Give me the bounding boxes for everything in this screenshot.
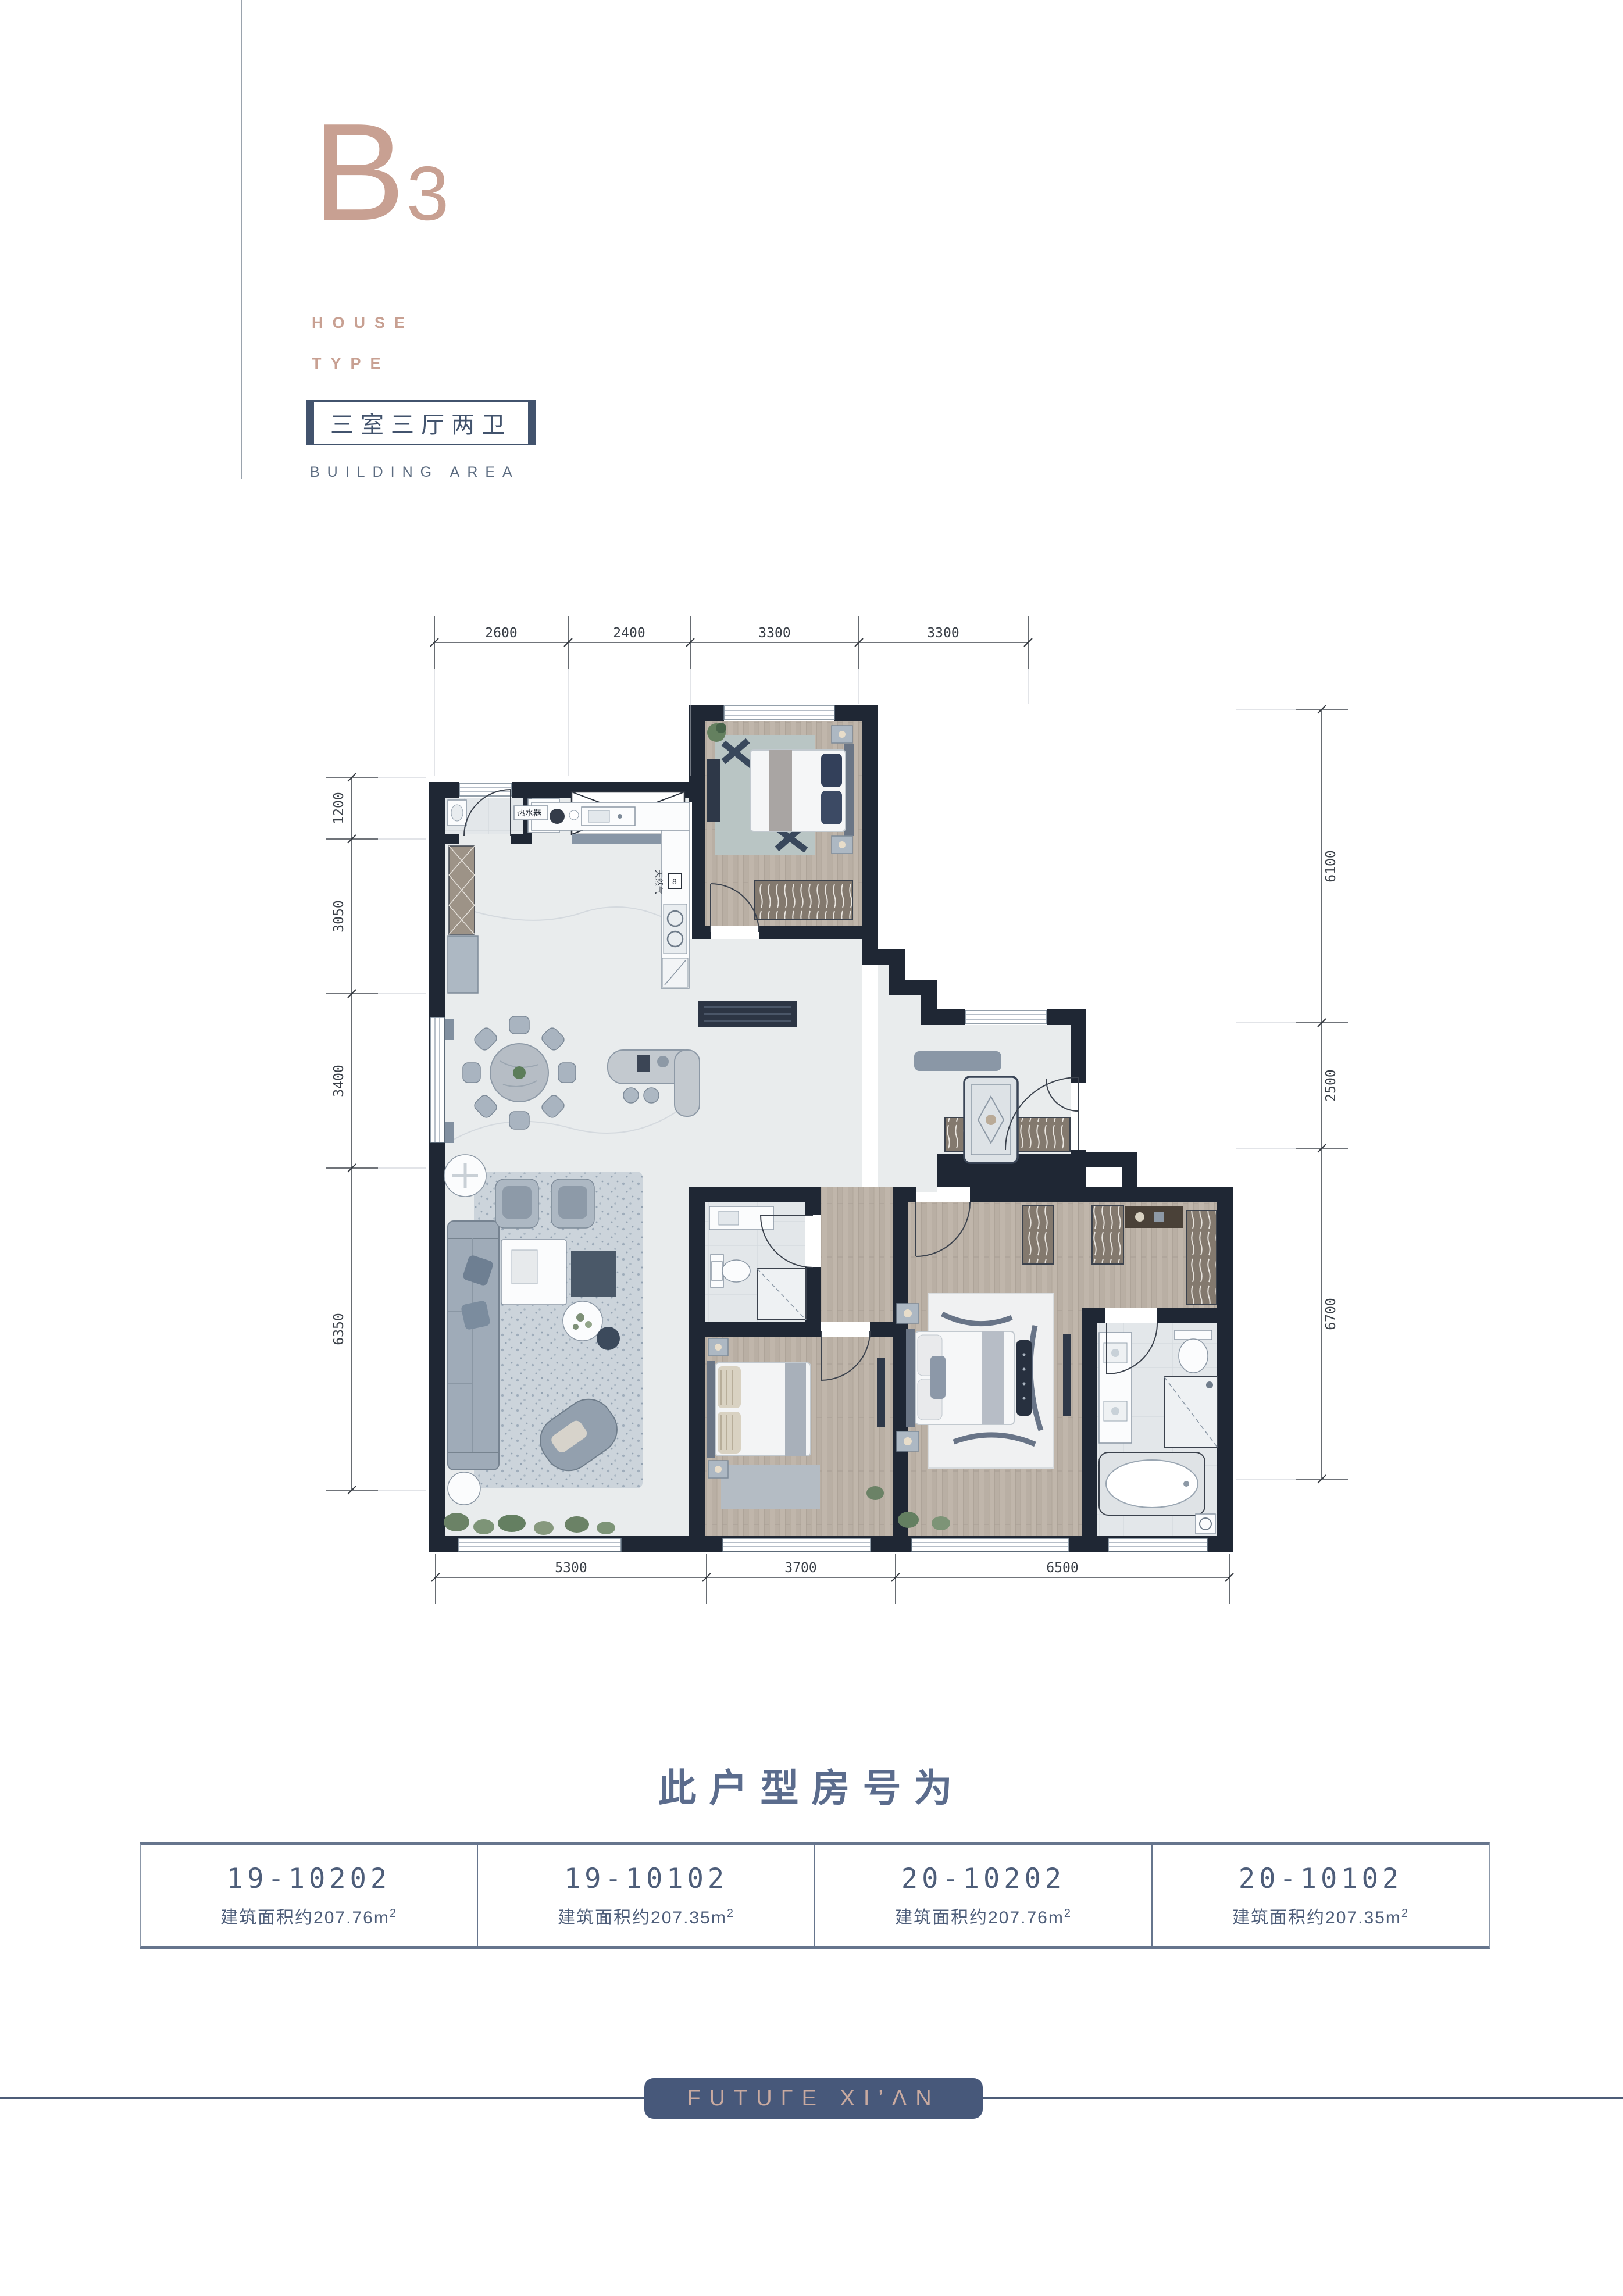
house-type-line2: TYPE [312,343,414,384]
dim-bottom-1: 5300 [555,1561,587,1576]
house-type-line1: HOUSE [312,302,414,343]
dim-top-4: 3300 [927,626,959,641]
dining-set [463,1016,576,1129]
dim-top-3: 3300 [758,626,790,641]
unit-letter: B [313,95,406,249]
table-cell: 19-10202 建筑面积约207.76m2 [141,1845,478,1946]
floor-plan: 热水器 天然气 8 [314,593,1372,1648]
hall-floor [689,939,862,1192]
room-area: 建筑面积约207.35m2 [558,1903,734,1929]
floor-plan-svg: 热水器 天然气 8 [314,593,1372,1648]
left-vertical-rule [241,0,242,479]
dim-top-1: 2600 [485,626,517,641]
side-cube [571,1251,616,1297]
bedroom1-wardrobe [755,881,852,919]
entry-bench [914,1051,1001,1071]
unit-code: B3 [313,103,449,242]
dim-left-4: 6350 [331,1313,347,1345]
footer-logo: FUTUΓE XI’ΛN [687,2086,940,2111]
table-cell: 20-10202 建筑面积约207.76m2 [815,1845,1153,1946]
dim-bottom-3: 6500 [1046,1561,1078,1576]
room-number: 19-10202 [227,1863,391,1895]
footer-logo-badge: FUTUΓE XI’ΛN [644,2078,983,2119]
bedroom2-rug [721,1465,820,1509]
room-area: 建筑面积约207.76m2 [895,1903,1072,1929]
room-area: 建筑面积约207.76m2 [220,1903,397,1929]
dim-left-1: 1200 [331,792,347,824]
dim-right-1: 6100 [1324,850,1339,882]
brochure-page: { "colors": {"accent_tan": "#c8a092", "s… [0,0,1623,2296]
room-number: 19-10102 [564,1863,728,1895]
gas-label: 天然气 [654,870,664,894]
building-area-label: BUILDING AREA [310,464,520,481]
table-cell: 20-10102 建筑面积约207.35m2 [1153,1845,1489,1946]
layout-label-box: 三室三厅两卫 [306,400,536,445]
room-number: 20-10102 [1239,1863,1403,1895]
layout-label: 三室三厅两卫 [330,406,512,440]
tv-console [707,759,720,822]
room-number: 20-10202 [901,1863,1065,1895]
dim-top-2: 2400 [613,626,645,641]
dim-left-2: 3050 [331,900,347,932]
room-table: 19-10202 建筑面积约207.76m2 19-10102 建筑面积约207… [140,1842,1490,1949]
table-cell: 19-10102 建筑面积约207.35m2 [478,1845,815,1946]
dim-right-3: 6700 [1324,1298,1339,1330]
dim-bottom-2: 3700 [784,1561,816,1576]
room-area: 建筑面积约207.35m2 [1232,1903,1409,1929]
section-title: 此户型房号为 [0,1757,1623,1813]
dim-right-2: 2500 [1324,1069,1339,1101]
gas-meter-label: 8 [672,877,677,886]
unit-number: 3 [406,151,449,236]
water-heater-label: 热水器 [517,808,541,817]
house-type-subtitle: HOUSE TYPE [312,302,414,384]
bed-bench [1016,1340,1032,1416]
hall2-floor [821,1187,893,1322]
living-set [444,1155,643,1505]
dim-left-3: 3400 [331,1065,347,1097]
